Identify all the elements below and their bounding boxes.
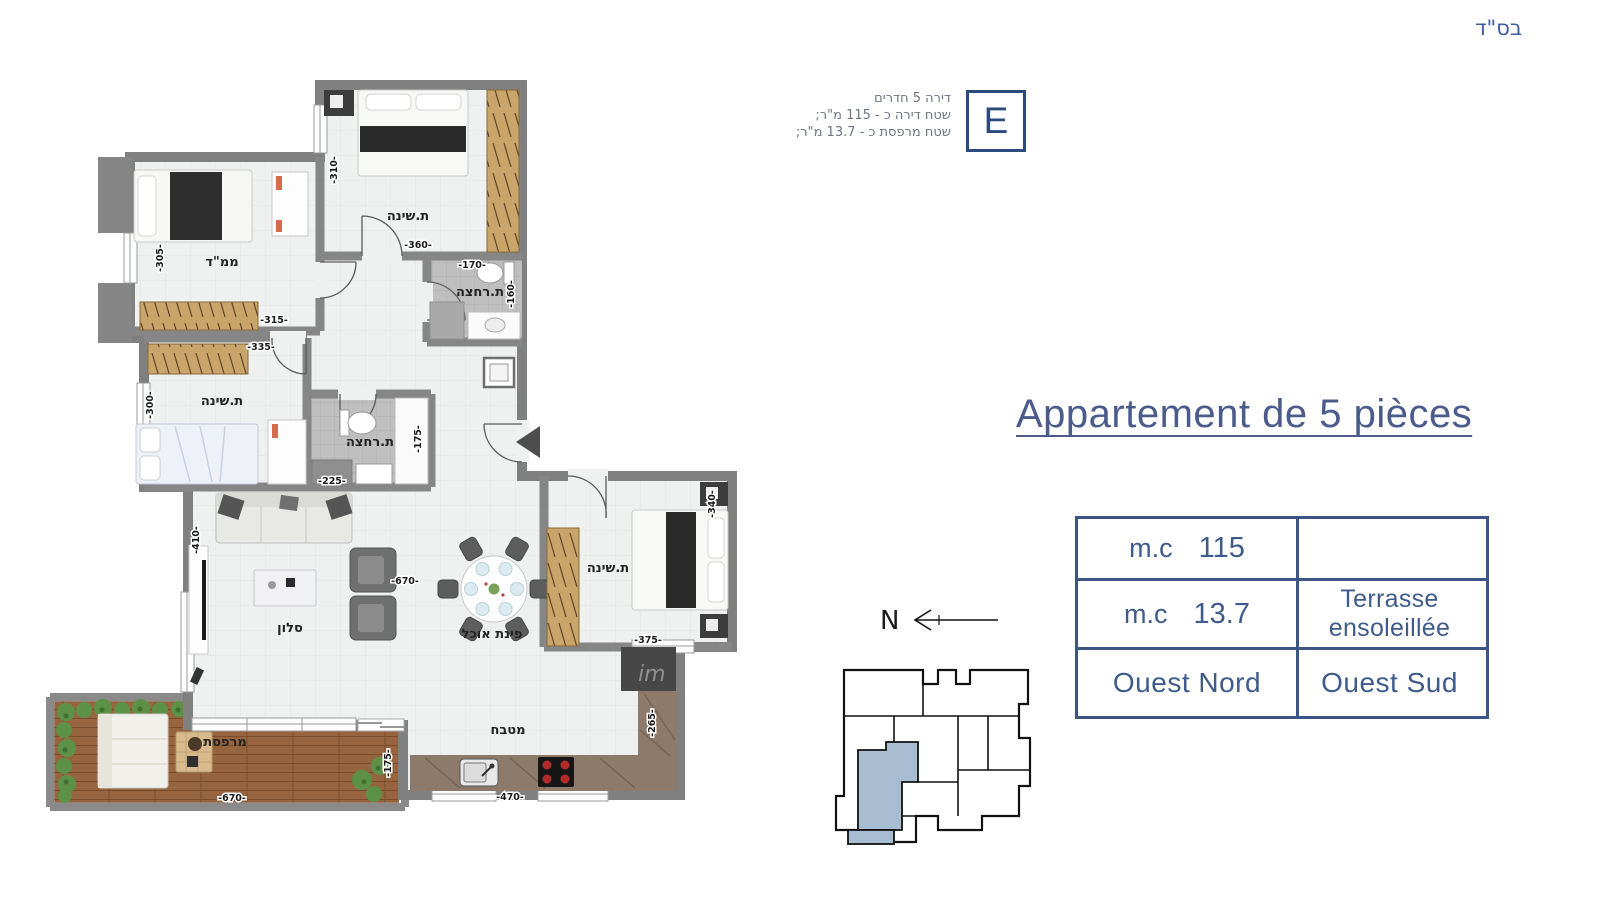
watermark: im (638, 662, 666, 687)
page-title-text: Appartement de 5 pièces (1016, 392, 1472, 436)
spec-cell-orientation-2: Ouest Sud (1296, 650, 1480, 716)
north-label: N (880, 606, 899, 636)
room-label-bedroom-left: ת.שינה (201, 394, 243, 409)
dimension-label: -265- (647, 709, 658, 737)
terrace-label-line: ensoleillée (1329, 614, 1450, 643)
page-title: Appartement de 5 pièces (1016, 392, 1522, 437)
spec-cell-empty (1296, 519, 1480, 578)
spec-row-area: m.c 115 (1078, 519, 1486, 578)
room-label-bedroom-right: ת.שינה (587, 561, 629, 576)
dimension-label: -670- (391, 576, 419, 587)
dimension-label: -360- (404, 240, 432, 251)
room-label-terrace: מרפסת (203, 735, 247, 750)
dimension-label: -170- (458, 260, 486, 271)
terrace-slider-door (358, 719, 404, 731)
spec-cell-terrace-label: Terrasse ensoleillée (1296, 581, 1480, 647)
spec-cell-terrace-area: m.c 13.7 (1078, 581, 1296, 647)
floor-plan: im ת.שינה ממ"ד ת.רחצה ת.שינה ת.רחצה סלון… (40, 80, 740, 820)
dimension-label: -305- (155, 244, 166, 272)
orientation-text: Ouest Nord (1113, 667, 1261, 699)
dimension-label: -470- (496, 792, 524, 803)
room-label-bath-mid: ת.רחצה (346, 435, 394, 450)
shaft (484, 358, 514, 387)
room-label-bedroom-top: ת.שינה (387, 209, 429, 224)
spec-cell-area: m.c 115 (1078, 519, 1296, 578)
dimension-label: -175- (383, 749, 394, 777)
dimension-label: -340- (707, 490, 718, 518)
dimension-label: -300- (145, 391, 156, 419)
dimension-label: -160- (506, 280, 517, 308)
room-label-bath-top: ת.רחצה (456, 285, 504, 300)
terrace-sofa (98, 714, 168, 788)
unit-info: דירה 5 חדרים שטח דירה כ - 115 מ"ר; שטח מ… (651, 90, 951, 141)
bsd-text: בס"ד (1475, 16, 1522, 40)
dimension-label: -315- (260, 315, 288, 326)
north-compass: N (868, 598, 1008, 640)
unit-label: m.c (1129, 533, 1173, 564)
dimension-label: -225- (318, 476, 346, 487)
dimension-label: -335- (247, 342, 275, 353)
room-label-dining: פינת אוכל (462, 627, 523, 642)
dimension-label: -375- (634, 635, 662, 646)
wall-block (98, 157, 132, 233)
page: im ת.שינה ממ"ד ת.רחצה ת.שינה ת.רחצה סלון… (0, 0, 1600, 900)
terrace-label-line: Terrasse (1340, 585, 1438, 614)
dimension-label: -670- (218, 793, 246, 804)
spec-cell-orientation-1: Ouest Nord (1078, 650, 1296, 716)
unit-info-line: שטח מרפסת כ - 13.7 מ"ר; (651, 124, 951, 141)
wall-block (98, 283, 132, 343)
spec-table: m.c 115 m.c 13.7 Terrasse ensoleillée Ou… (1075, 516, 1489, 719)
room-label-kitchen: מטבח (490, 723, 525, 738)
terrace-area-value: 13.7 (1194, 598, 1250, 631)
area-value: 115 (1199, 532, 1245, 565)
unit-label: m.c (1124, 599, 1168, 630)
dimension-label: -175- (413, 425, 424, 453)
spec-row-terrace: m.c 13.7 Terrasse ensoleillée (1078, 578, 1486, 647)
unit-info-line: שטח דירה כ - 115 מ"ר; (651, 107, 951, 124)
unit-letter: E (984, 100, 1009, 142)
spec-row-orientation: Ouest Nord Ouest Sud (1078, 647, 1486, 716)
orientation-text: Ouest Sud (1321, 667, 1458, 699)
unit-badge: E (966, 90, 1026, 152)
unit-info-line: דירה 5 חדרים (651, 90, 951, 107)
key-plan (828, 646, 1034, 856)
room-label-mamad: ממ"ד (205, 255, 238, 270)
dimension-label: -310- (329, 156, 340, 184)
dimension-label: -410- (191, 526, 202, 554)
room-label-salon: סלון (277, 621, 303, 636)
